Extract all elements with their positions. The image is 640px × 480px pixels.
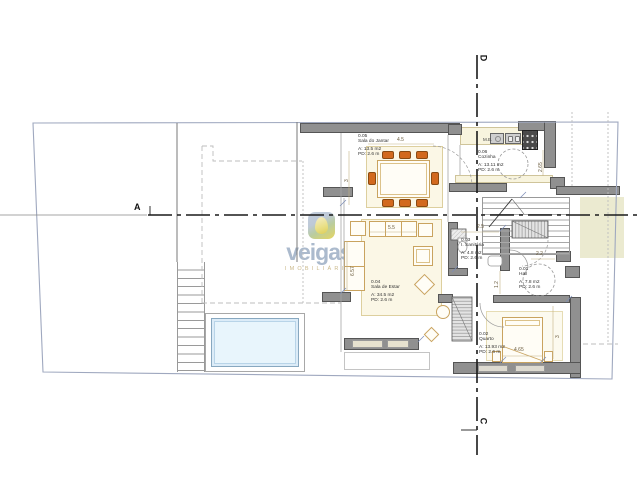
dim-hall-depth: 1.2	[494, 281, 500, 288]
side-table	[418, 223, 433, 237]
swimming-pool	[211, 318, 299, 367]
section-marker-d: D	[478, 55, 488, 62]
terrace-area	[580, 197, 624, 258]
floor-plan-canvas: veigas IMOBILIÁRIA	[0, 0, 640, 480]
window	[478, 365, 508, 372]
armchair	[424, 327, 440, 343]
dim-hall-width: 2.2	[536, 251, 543, 257]
room-name: Quarto	[479, 337, 505, 342]
kitchen-counter-bottom	[455, 175, 553, 183]
kitchen-sink	[505, 133, 521, 144]
sofa-divider	[385, 222, 386, 236]
veigas-logo-icon	[308, 212, 335, 239]
wall-segment	[493, 295, 570, 303]
sink-bowl	[515, 136, 520, 142]
sofa-divider	[401, 222, 402, 236]
room-ceiling: PD: 2.6 m	[358, 152, 389, 157]
room-name: Sala de Estar	[371, 285, 400, 290]
leaf-icon	[315, 217, 328, 234]
dim-kitchen-depth: 2.65	[538, 162, 544, 172]
kitchen-unit-label: M.E.	[483, 137, 492, 142]
table-inner-line	[380, 163, 427, 195]
room-label-sala-de-estar: 0.04 Sala de Estar A: 34.5 m2 PD: 2.6 m	[371, 280, 400, 304]
dining-chair	[399, 199, 411, 207]
dining-chair	[368, 172, 376, 185]
room-ceiling: PD: 2.6 m	[519, 285, 540, 290]
wall-segment	[323, 187, 353, 197]
wall-segment	[565, 266, 580, 278]
room-label-hall: 0.01 Hall A: 7.8 m2 PD: 2.6 m	[519, 267, 540, 291]
room-label-sanitaria: 0.03 I. Sanitária A: 4.8 m2 PD: 2.6 m	[461, 238, 484, 262]
dim-living-depth: 6.57	[350, 266, 356, 276]
wall-segment	[448, 124, 462, 135]
room-ceiling: PD: 2.6 m	[479, 350, 505, 355]
room-name: Cozinha	[478, 155, 504, 160]
wall-segment	[322, 292, 351, 302]
dining-chair	[416, 199, 428, 207]
dim-bed-width: 4.65	[514, 347, 524, 353]
dining-chair	[382, 199, 394, 207]
garden-walls	[177, 122, 297, 262]
coffee-table	[413, 246, 433, 266]
pillow	[505, 320, 540, 326]
bench-cushion	[352, 340, 383, 348]
table-inner-line	[416, 249, 430, 263]
room-label-cozinha: 0.06 Cozinha A: 13.11 m2 PD: 2.6 m	[478, 150, 504, 174]
pool-water	[214, 321, 296, 364]
bench-cushion	[387, 340, 409, 348]
round-side-table	[436, 305, 450, 319]
dim-dining-width: 4.5	[397, 137, 404, 143]
room-label-sala-do-jantar: 0.05 Sala do Jantar A: 13.5 m2 PD: 2.6 m	[358, 134, 389, 158]
nightstand	[544, 351, 553, 362]
wall-segment	[300, 123, 460, 133]
dim-dining-depth: 3	[344, 179, 350, 182]
wall-segment	[448, 222, 458, 272]
bedroom-closet	[452, 297, 472, 341]
window	[515, 365, 545, 372]
wall-segment	[448, 268, 468, 276]
wall-segment	[544, 121, 556, 168]
pool-deck	[205, 313, 305, 372]
garden-steps	[177, 262, 205, 372]
room-name: Hall	[519, 272, 540, 277]
kitchen-island	[449, 183, 507, 192]
dining-chair	[416, 151, 428, 159]
burner-icon	[495, 136, 501, 142]
dim-living-width: 5.5	[388, 225, 395, 231]
dining-table	[377, 160, 430, 198]
section-marker-a: A	[134, 202, 141, 212]
patio-step	[344, 352, 430, 370]
dining-chair	[431, 172, 439, 185]
dim-bedroom-depth: 3	[555, 335, 561, 338]
sink-bowl	[508, 136, 513, 142]
room-ceiling: PD: 2.6 m	[371, 298, 400, 303]
room-name: I. Sanitária	[461, 243, 484, 248]
wall-segment	[438, 294, 453, 303]
side-table	[350, 221, 366, 236]
dim-bath-width: 2.5	[477, 224, 484, 230]
wall-segment	[556, 186, 620, 195]
stove	[522, 130, 538, 150]
room-label-quarto: 0.02 Quarto A: 13.93 m2 PD: 2.6 m	[479, 332, 505, 356]
staircase	[482, 197, 570, 255]
section-marker-c: C	[478, 418, 488, 425]
bed	[502, 317, 543, 363]
room-name: Sala do Jantar	[358, 139, 389, 144]
dining-chair	[399, 151, 411, 159]
room-ceiling: PD: 2.6 m	[478, 168, 504, 173]
room-ceiling: PD: 2.6 m	[461, 256, 484, 261]
